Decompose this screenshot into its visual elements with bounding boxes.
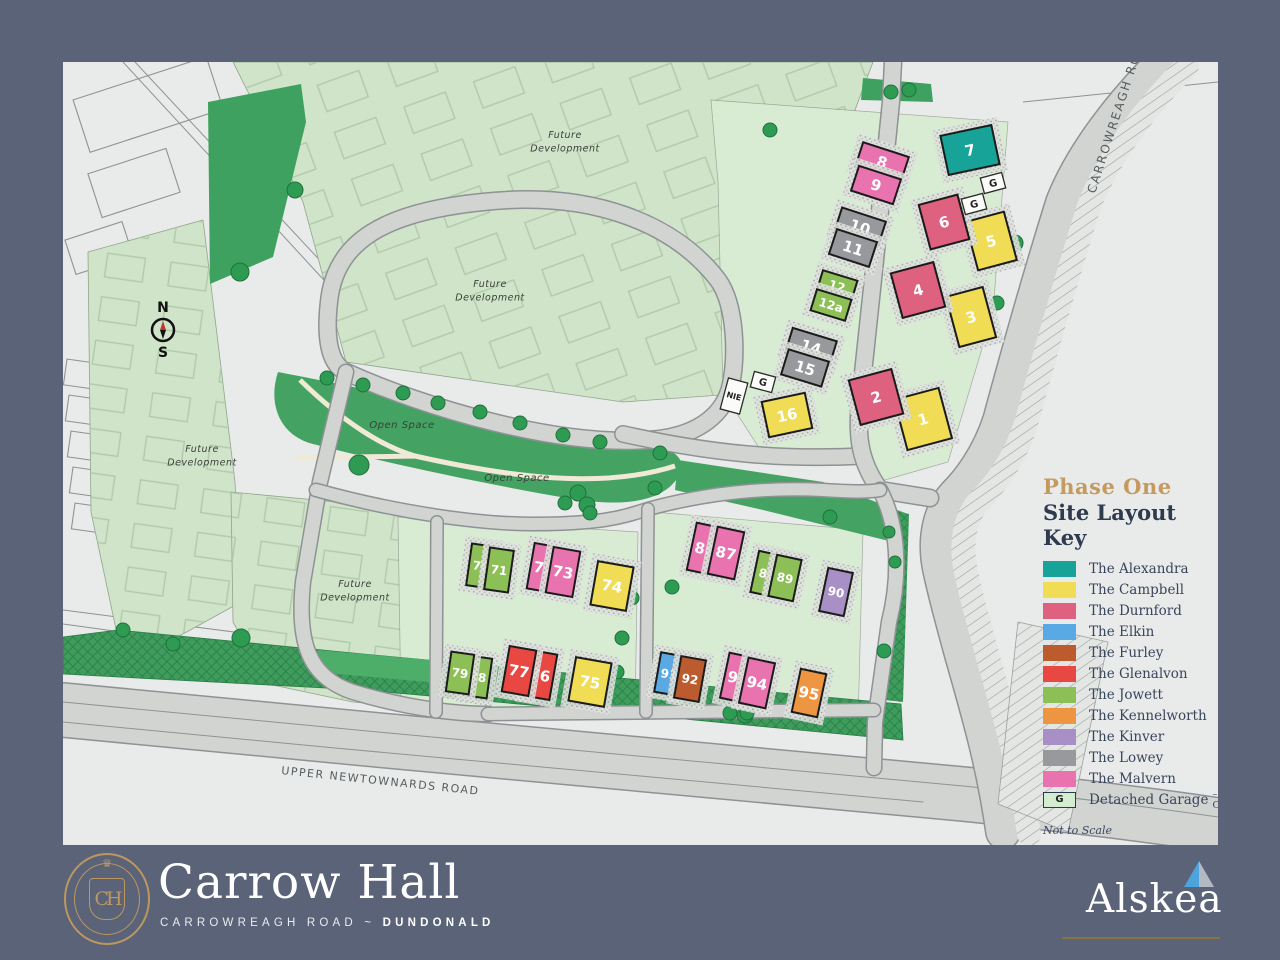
tree-icon bbox=[320, 371, 334, 385]
tree-icon bbox=[116, 623, 130, 637]
tree-icon bbox=[593, 435, 607, 449]
legend-item-label: The Kinver bbox=[1089, 729, 1164, 745]
legend-item-durnford: The Durnford bbox=[1043, 600, 1218, 621]
plot-74: 74 bbox=[582, 553, 641, 619]
map-label-open-space-2: Open Space bbox=[484, 473, 549, 484]
tree-icon bbox=[287, 182, 303, 198]
plot-number: 79 bbox=[451, 665, 469, 681]
plot-75: 75 bbox=[560, 649, 619, 715]
legend-item-alexandra: The Alexandra bbox=[1043, 558, 1218, 579]
plot-number: 75 bbox=[578, 672, 602, 693]
malvern-swatch bbox=[1043, 771, 1076, 787]
legend-item-glenalvon: The Glenalvon bbox=[1043, 663, 1218, 684]
legend-item-garage: G Detached Garage – Optional bbox=[1043, 789, 1218, 810]
map-label-open-space-1: Open Space bbox=[369, 420, 434, 431]
developer-rule bbox=[1062, 937, 1220, 939]
tree-icon bbox=[166, 637, 180, 651]
tree-icon bbox=[615, 631, 629, 645]
svg-text:Future: Future bbox=[548, 130, 582, 141]
tree-icon bbox=[884, 85, 898, 99]
legend-item-malvern: The Malvern bbox=[1043, 768, 1218, 789]
durnford-swatch bbox=[1043, 603, 1076, 619]
lowey-swatch bbox=[1043, 750, 1076, 766]
svg-text:S: S bbox=[158, 345, 168, 361]
tree-icon bbox=[556, 428, 570, 442]
legend-item-jowett: The Jowett bbox=[1043, 684, 1218, 705]
campbell-swatch bbox=[1043, 582, 1076, 598]
site-layout-key: Phase One Site Layout Key The AlexandraT… bbox=[1043, 474, 1218, 837]
legend-item-label: The Campbell bbox=[1089, 582, 1184, 598]
developer-name: Alskea bbox=[1086, 877, 1223, 922]
legend-item-label: The Malvern bbox=[1089, 771, 1176, 787]
kennelworth-swatch bbox=[1043, 708, 1076, 724]
kinver-swatch bbox=[1043, 729, 1076, 745]
plot-number: 73 bbox=[551, 562, 575, 583]
plot-71: 71 bbox=[476, 540, 521, 601]
tree-icon bbox=[648, 481, 662, 495]
svg-text:Future: Future bbox=[185, 444, 219, 455]
legend-item-label: The Alexandra bbox=[1089, 561, 1189, 577]
tree-icon bbox=[889, 556, 901, 568]
tree-icon bbox=[232, 629, 250, 647]
site-plan-map: 12345678910111212a1415167071727374757677… bbox=[63, 62, 1218, 845]
legend-item-label: The Furley bbox=[1089, 645, 1163, 661]
plot-number: 92 bbox=[681, 671, 700, 688]
tree-icon bbox=[349, 455, 369, 475]
legend-item-label: The Durnford bbox=[1089, 603, 1182, 619]
tree-icon bbox=[665, 580, 679, 594]
glenalvon-swatch bbox=[1043, 666, 1076, 682]
footer: ♛ CH Carrow Hall CARROWREAGH ROAD ~ DUND… bbox=[0, 845, 1280, 960]
legend-item-label: The Glenalvon bbox=[1089, 666, 1188, 682]
svg-text:N: N bbox=[157, 300, 169, 316]
furley-swatch bbox=[1043, 645, 1076, 661]
elkin-swatch bbox=[1043, 624, 1076, 640]
tree-icon bbox=[763, 123, 777, 137]
legend-item-furley: The Furley bbox=[1043, 642, 1218, 663]
brand-tagline: CARROWREAGH ROAD ~ DUNDONALD bbox=[160, 917, 560, 929]
svg-text:Open Space: Open Space bbox=[484, 473, 549, 484]
plot-number: 77 bbox=[507, 661, 531, 682]
svg-text:Future: Future bbox=[473, 279, 507, 290]
alexandra-swatch bbox=[1043, 561, 1076, 577]
legend-item-label: The Jowett bbox=[1089, 687, 1163, 703]
legend-item-lowey: The Lowey bbox=[1043, 747, 1218, 768]
tree-icon bbox=[513, 416, 527, 430]
legend-item-kinver: The Kinver bbox=[1043, 726, 1218, 747]
legend-item-label: Detached Garage bbox=[1089, 792, 1208, 808]
legend-title: Site Layout Key bbox=[1043, 500, 1218, 550]
carrow-hall-crest-icon: ♛ CH bbox=[64, 853, 150, 945]
legend-items: The AlexandraThe CampbellThe DurnfordThe… bbox=[1043, 558, 1218, 789]
garage-symbol: G bbox=[1055, 794, 1063, 805]
tree-icon bbox=[396, 386, 410, 400]
legend-item-elkin: The Elkin bbox=[1043, 621, 1218, 642]
tree-icon bbox=[823, 510, 837, 524]
svg-text:Future: Future bbox=[338, 579, 372, 590]
tree-icon bbox=[558, 496, 572, 510]
legend-item-kennelworth: The Kennelworth bbox=[1043, 705, 1218, 726]
plot-number: 71 bbox=[490, 562, 508, 578]
garage-swatch: G bbox=[1043, 792, 1076, 808]
developer-logo: Alskea bbox=[1062, 855, 1222, 955]
not-to-scale-note: Not to Scale bbox=[1043, 824, 1218, 837]
tree-icon bbox=[883, 526, 895, 538]
tree-icon bbox=[877, 644, 891, 658]
legend-item-campbell: The Campbell bbox=[1043, 579, 1218, 600]
plot-number: 74 bbox=[600, 576, 624, 597]
crest-monogram: CH bbox=[94, 888, 119, 910]
legend-item-label: The Lowey bbox=[1089, 750, 1163, 766]
tree-icon bbox=[902, 83, 916, 97]
tree-icon bbox=[583, 506, 597, 520]
legend-item-suffix: – Optional bbox=[1212, 789, 1218, 811]
svg-text:Development: Development bbox=[167, 458, 237, 469]
tree-icon bbox=[431, 396, 445, 410]
svg-text:Development: Development bbox=[530, 144, 600, 155]
legend-item-label: The Kennelworth bbox=[1089, 708, 1207, 724]
tree-icon bbox=[653, 446, 667, 460]
tree-icon bbox=[231, 263, 249, 281]
tree-icon bbox=[356, 378, 370, 392]
legend-item-label: The Elkin bbox=[1089, 624, 1154, 640]
tree-icon bbox=[473, 405, 487, 419]
brand-name: Carrow Hall bbox=[158, 855, 578, 910]
svg-text:Development: Development bbox=[455, 293, 525, 304]
phase-title: Phase One bbox=[1043, 474, 1218, 499]
svg-text:Open Space: Open Space bbox=[369, 420, 434, 431]
svg-text:Development: Development bbox=[320, 593, 390, 604]
plot-79: 79 bbox=[438, 644, 482, 703]
jowett-swatch bbox=[1043, 687, 1076, 703]
